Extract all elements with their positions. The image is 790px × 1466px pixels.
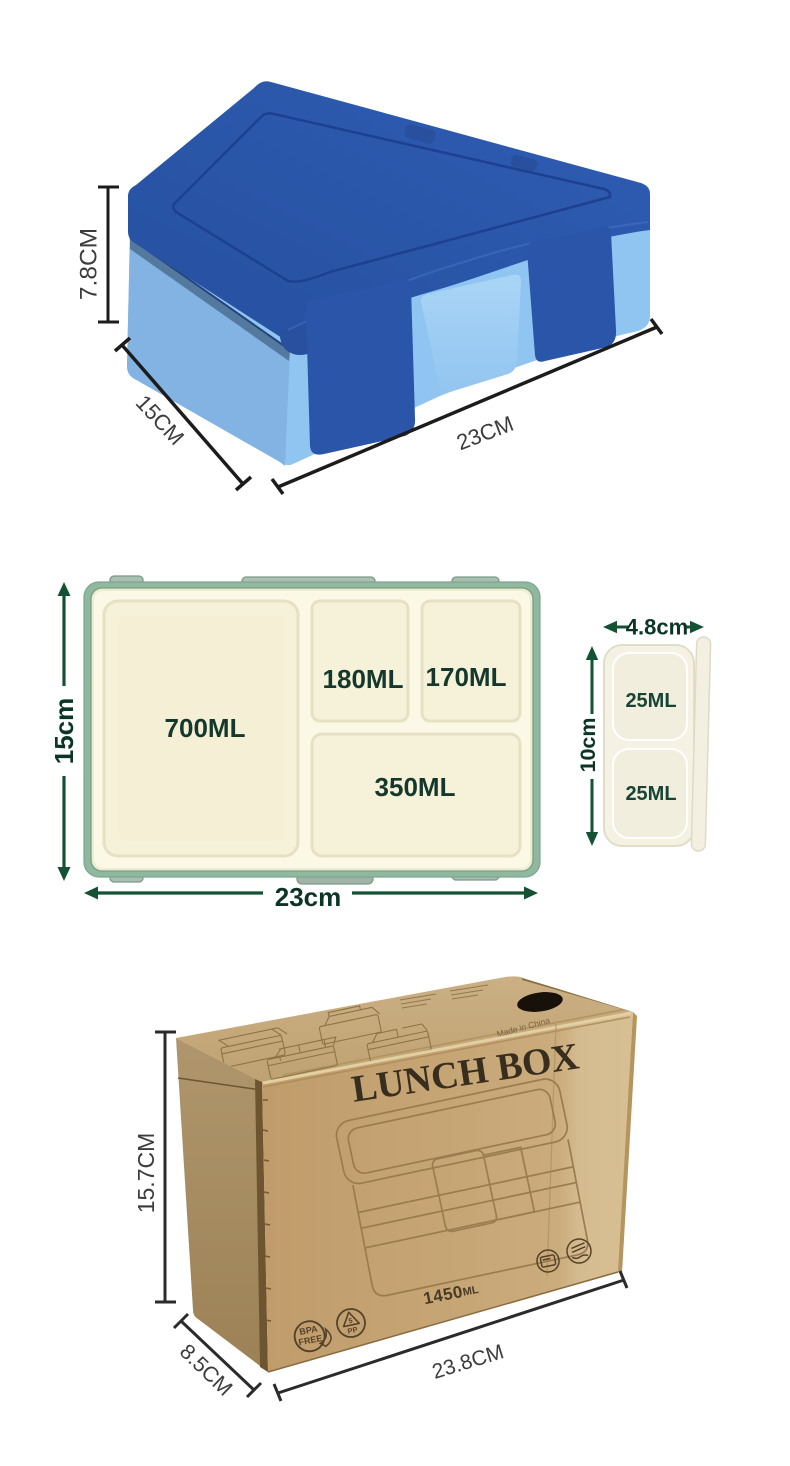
svg-text:350ML: 350ML [375,772,456,802]
svg-text:10cm: 10cm [576,718,600,773]
svg-text:170ML: 170ML [426,662,507,692]
svg-text:23.8CM: 23.8CM [429,1340,506,1383]
svg-text:4.8cm: 4.8cm [626,615,688,640]
svg-text:25ML: 25ML [625,783,676,805]
svg-text:8.5CM: 8.5CM [175,1339,237,1400]
svg-text:700ML: 700ML [165,713,246,743]
svg-text:25ML: 25ML [625,690,676,712]
svg-text:23CM: 23CM [453,411,517,455]
svg-text:180ML: 180ML [323,664,404,694]
svg-text:7.8CM: 7.8CM [76,228,103,300]
svg-text:15cm: 15cm [49,698,79,765]
svg-text:23cm: 23cm [275,882,342,912]
svg-text:15.7CM: 15.7CM [133,1133,159,1214]
